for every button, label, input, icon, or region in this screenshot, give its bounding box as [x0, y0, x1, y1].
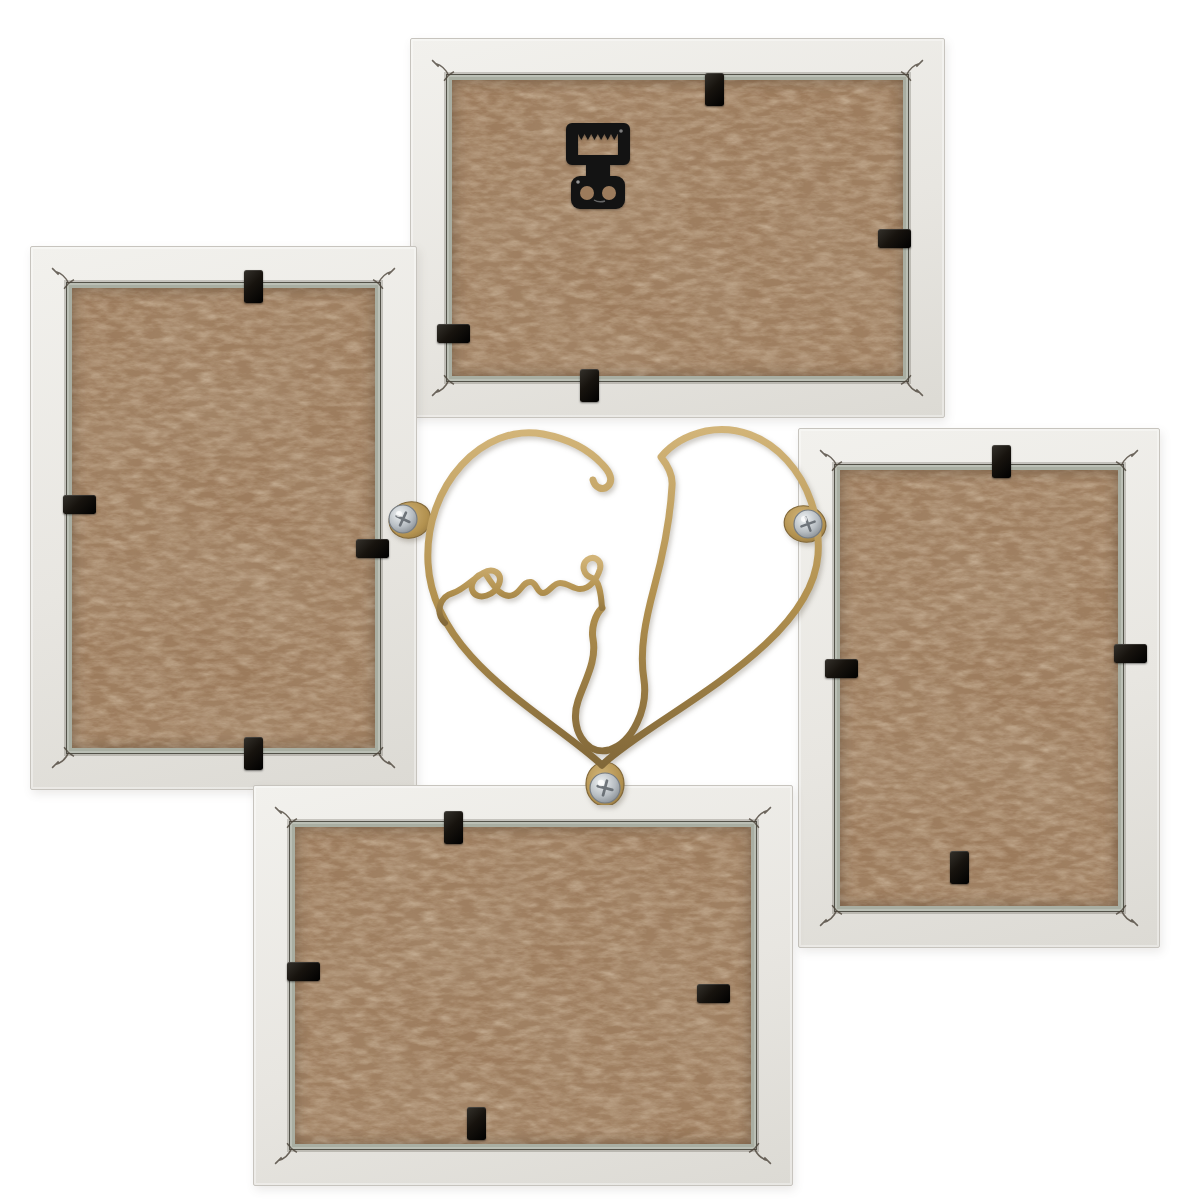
love-script-wire-mirrored [439, 558, 602, 623]
v-nail-mark-icon [900, 373, 924, 397]
frame-bottom-landscape [253, 785, 793, 1186]
backing-clip [697, 984, 730, 1003]
backing-clip [950, 851, 969, 884]
backing-clip [287, 962, 320, 981]
backing-clip [705, 73, 724, 106]
heart-left-lobe-wire [428, 433, 611, 765]
v-nail-mark-icon [900, 59, 924, 83]
hardboard-backing [452, 80, 903, 376]
v-nail-mark-icon [1115, 903, 1139, 927]
love-heart-wire-ornament [385, 403, 835, 805]
hardboard-backing [295, 827, 751, 1144]
v-nail-mark-icon [274, 806, 298, 830]
v-nail-mark-icon [819, 903, 843, 927]
v-nail-mark-icon [1115, 449, 1139, 473]
backing-clip [878, 229, 911, 248]
backing-clip [244, 737, 263, 770]
frame-top-landscape [410, 38, 945, 418]
v-nail-mark-icon [372, 267, 396, 291]
v-nail-mark-icon [748, 806, 772, 830]
backing-clip [244, 270, 263, 303]
frame-left-portrait [30, 246, 417, 790]
backing-clip [467, 1107, 486, 1140]
v-nail-mark-icon [431, 59, 455, 83]
backing-clip [63, 495, 96, 514]
v-nail-mark-icon [51, 267, 75, 291]
screw-left [389, 505, 417, 533]
screw-right [794, 510, 822, 538]
v-nail-mark-icon [748, 1141, 772, 1165]
collage-frame-back-photo [0, 0, 1200, 1200]
frame-right-portrait [798, 428, 1160, 948]
v-nail-mark-icon [431, 373, 455, 397]
screw-bottom [590, 773, 620, 803]
v-nail-mark-icon [274, 1141, 298, 1165]
hardboard-backing [840, 470, 1118, 906]
backing-clip [992, 445, 1011, 478]
backing-clip [437, 324, 470, 343]
backing-clip [1114, 644, 1147, 663]
hardboard-backing [72, 288, 375, 748]
backing-clip [580, 369, 599, 402]
backing-clip [444, 811, 463, 844]
v-nail-mark-icon [51, 745, 75, 769]
sawtooth-hanger-icon [564, 121, 632, 211]
